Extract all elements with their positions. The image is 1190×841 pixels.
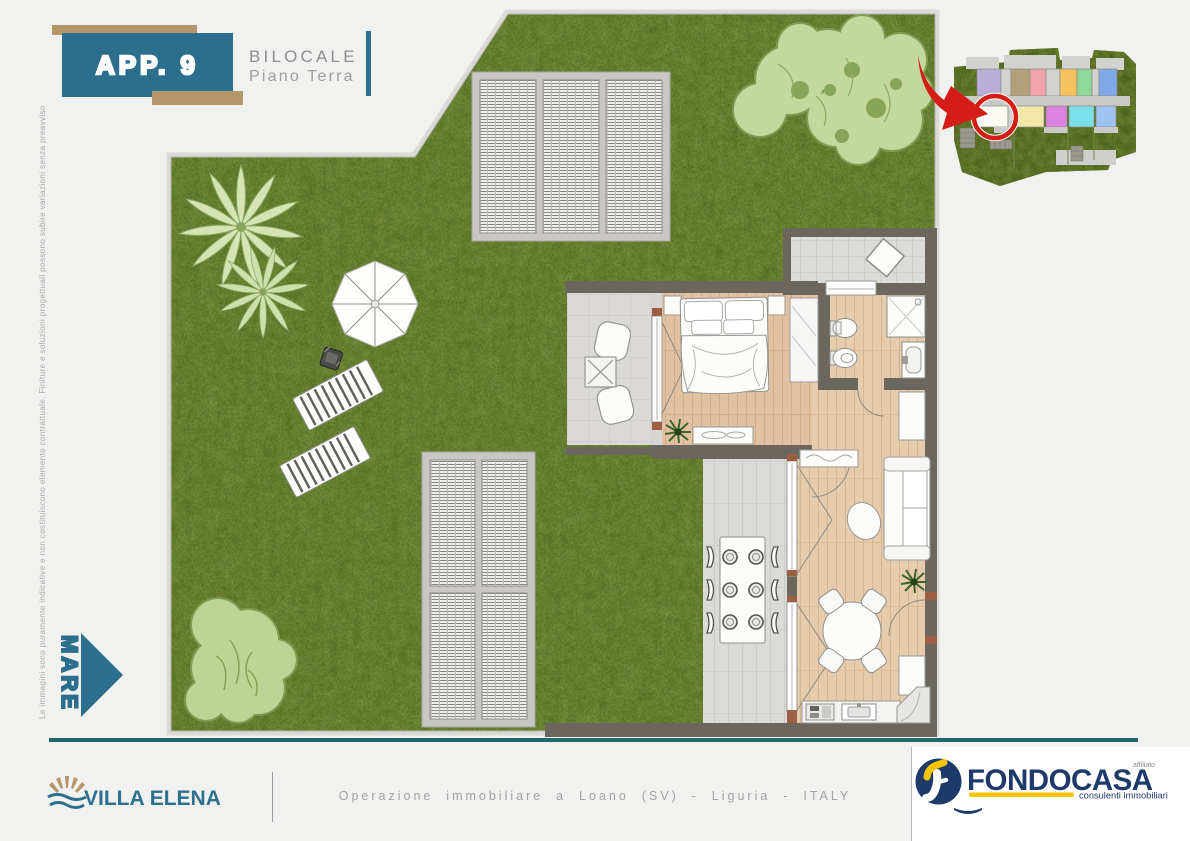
svg-text:affiliato: affiliato [1133,762,1155,769]
svg-text:consulenti immobiliari: consulenti immobiliari [1079,791,1168,801]
